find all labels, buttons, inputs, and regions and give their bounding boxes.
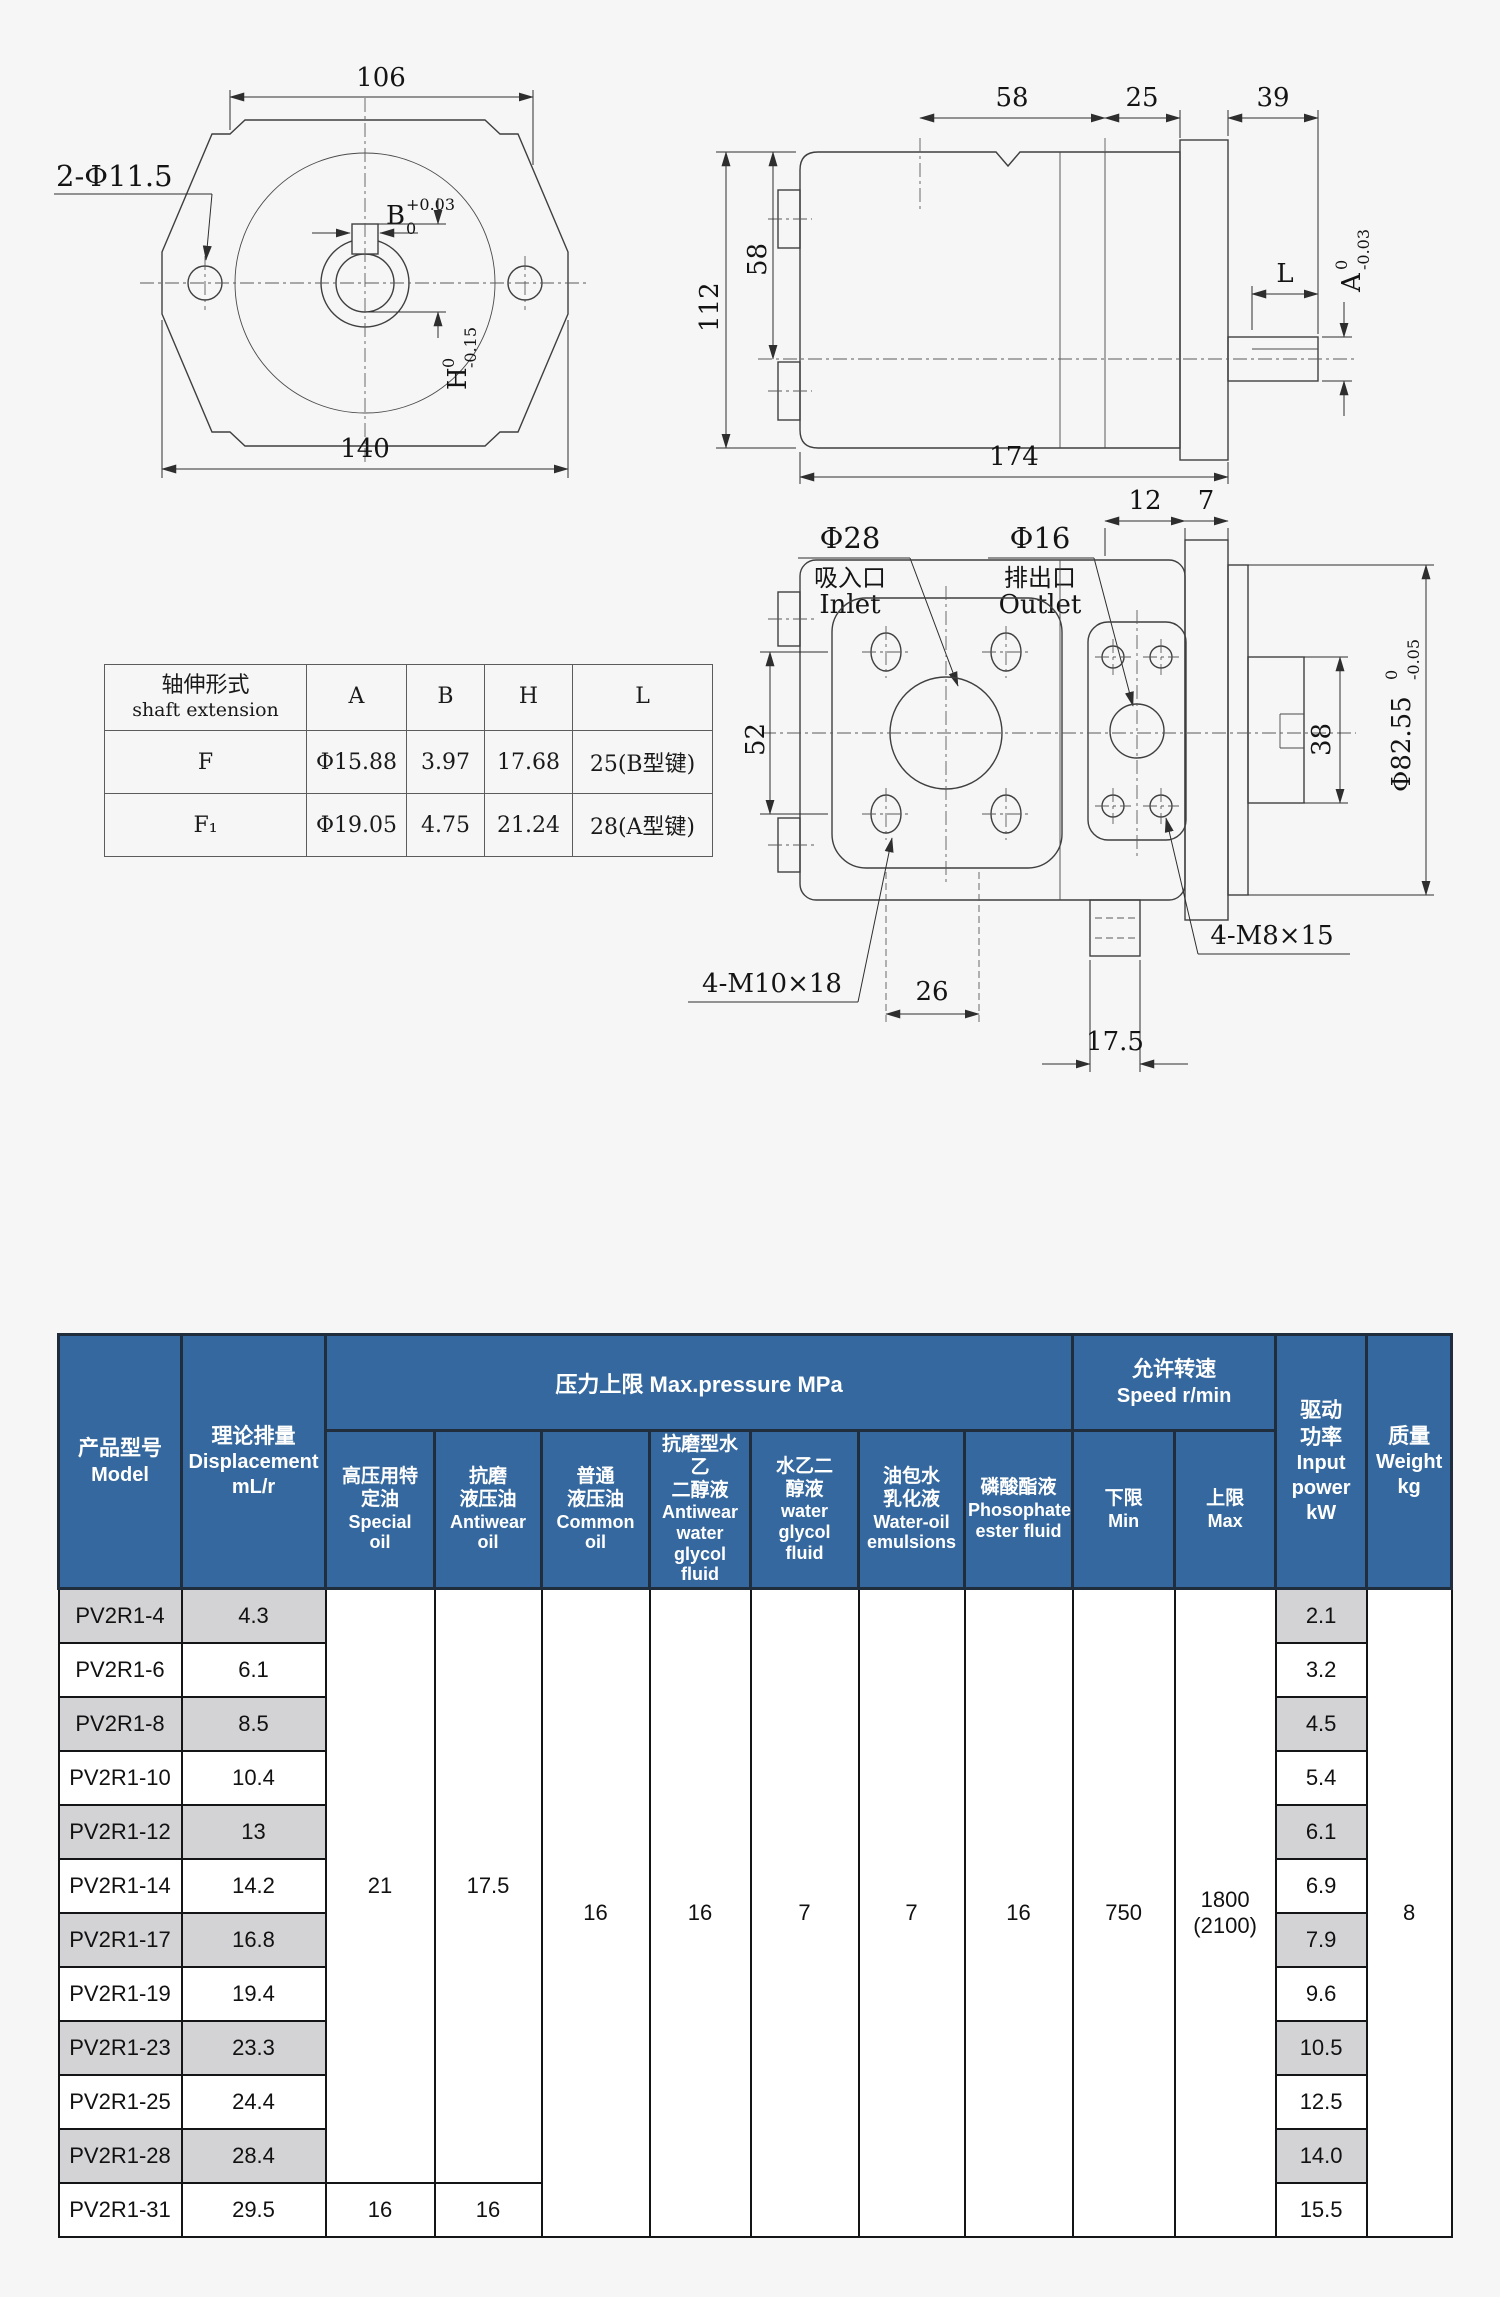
dim-175-label: 17.5 [1086,1027,1144,1057]
model-cell: PV2R1-23 [59,2021,182,2075]
shaft-col-type: 轴伸形式 shaft extension [105,665,307,731]
dim-a-sub: -0.03 [1354,229,1373,270]
max-cn: 上限 [1178,1488,1272,1511]
merged-water-oil: 7 [859,1589,965,2237]
shaft-type-cn: 轴伸形式 [105,673,306,699]
col-min: 下限Min [1073,1431,1175,1589]
col-model: 产品型号 Model [59,1335,182,1589]
model-cn: 产品型号 [62,1435,178,1462]
dim-a-main: A [1337,272,1367,293]
dim-b-sup: +0.03 [406,195,455,214]
spec-row: PV2R1-4 4.3 21 17.5 16 16 7 7 16 750 180… [59,1589,1452,1643]
dim-25-label: 25 [1125,83,1158,113]
dim-25: 25 [1105,83,1180,138]
dim-h-sub: -0.15 [461,327,480,368]
disp-en: Displacement mL/r [185,1450,322,1500]
merged-min-speed: 750 [1073,1589,1175,2237]
model-cell: PV2R1-31 [59,2183,182,2237]
dim-58-top-label: 58 [995,83,1028,113]
dim-140-label: 140 [340,434,390,464]
dim-26: 26 [886,872,979,1022]
dim-h-main: H [443,367,473,390]
dim-a-sup: 0 [1332,260,1351,270]
dim-52-label: 52 [741,723,771,756]
shaft-f1-b: 4.75 [407,794,485,857]
model-cell: PV2R1-6 [59,1643,182,1697]
dim-phi82-sub: -0.05 [1404,639,1423,680]
shaft-col-b: B [407,665,485,731]
disp-cn: 理论排量 [185,1423,322,1450]
power-cell: 14.0 [1276,2129,1367,2183]
disp-cell: 23.3 [182,2021,326,2075]
model-cell: PV2R1-28 [59,2129,182,2183]
min-en: Min [1076,1511,1171,1532]
power-cell: 10.5 [1276,2021,1367,2075]
merged-weight: 8 [1367,1589,1452,2237]
fluid2-en: Common oil [545,1512,646,1553]
power-cell: 4.5 [1276,1697,1367,1751]
dim-B-tolerance: B +0.03 0 [312,195,455,238]
min-cn: 下限 [1076,1488,1171,1511]
fluid1-cn: 抗磨 液压油 [438,1466,538,1512]
model-en: Model [62,1463,178,1488]
model-cell: PV2R1-12 [59,1805,182,1859]
model-cell: PV2R1-25 [59,2075,182,2129]
shaft-f-type: F [105,731,307,794]
disp-cell: 10.4 [182,1751,326,1805]
dim-39: 39 [1228,83,1318,334]
fluid4-en: water glycol fluid [754,1501,855,1563]
max-en: Max [1178,1511,1272,1532]
shaft-f-a: Φ15.88 [307,731,407,794]
group-pressure: 压力上限 Max.pressure MPa [326,1335,1073,1431]
fluid0-en: Special oil [329,1512,431,1553]
fluid2-cn: 普通 液压油 [545,1466,646,1512]
fluid1-en: Antiwear oil [438,1512,538,1553]
dim-phi82-sup: 0 [1382,670,1401,680]
shaft-extension-table: 轴伸形式 shaft extension A B H L F Φ15.88 3.… [104,664,713,857]
disp-cell: 6.1 [182,1643,326,1697]
shaft-f1-l: 28(A型键) [573,794,713,857]
fluid5-en: Water-oil emulsions [862,1512,961,1553]
shaft-col-a: A [307,665,407,731]
fluid3-en: Antiwear water glycol fluid [653,1502,747,1585]
spec-header-group-row: 产品型号 Model 理论排量 Displacement mL/r 压力上限 M… [59,1335,1452,1431]
shaft-f1-type: F₁ [105,794,307,857]
outlet-cn-label: 排出口 [1004,564,1076,592]
power-en: Input power kW [1279,1451,1363,1526]
merged-antiwear-glycol: 16 [650,1589,751,2237]
power-cell: 6.9 [1276,1859,1367,1913]
dim-A-tolerance: A 0 -0.03 [1322,229,1373,416]
dim-58-top: 58 [920,83,1105,118]
merged-antiwear-oil: 17.5 [435,1589,542,2183]
holes-label: 2-Φ11.5 [56,159,173,193]
callout-mounting-holes: 2-Φ11.5 [54,159,212,260]
callout-m10: 4-M10×18 [688,838,892,1002]
power-cell: 6.1 [1276,1805,1367,1859]
disp-cell: 4.3 [182,1589,326,1643]
dim-112: 112 [695,152,796,448]
col-weight: 质量 Weight kg [1367,1335,1452,1589]
shaft-f1-a: Φ19.05 [307,794,407,857]
dim-L-label: L [1276,259,1293,289]
inlet-callout: Φ28 吸入口 Inlet [798,521,958,686]
dim-7-label: 7 [1198,486,1215,516]
model-cell: PV2R1-8 [59,1697,182,1751]
dim-58-vertical: 58 [743,152,773,359]
col-displacement: 理论排量 Displacement mL/r [182,1335,326,1589]
power-cn: 驱动 功率 [1279,1397,1363,1452]
speed-en: Speed r/min [1076,1384,1272,1409]
weight-cn: 质量 [1370,1423,1448,1450]
power-cell: 2.1 [1276,1589,1367,1643]
dim-h-sup: 0 [439,358,458,368]
dim-112-label: 112 [695,282,725,332]
fluid6-en: Phosophate ester fluid [968,1500,1069,1541]
col-input-power: 驱动 功率 Input power kW [1276,1335,1367,1589]
dim-38: 38 [1304,657,1348,803]
disp-cell: 29.5 [182,2183,326,2237]
inlet-en-label: Inlet [819,590,881,620]
model-cell: PV2R1-10 [59,1751,182,1805]
power-cell: 5.4 [1276,1751,1367,1805]
power-cell: 7.9 [1276,1913,1367,1967]
merged-max-speed: 1800 (2100) [1175,1589,1276,2237]
col-water-oil: 油包水 乳化液Water-oil emulsions [859,1431,965,1589]
m10-label: 4-M10×18 [702,969,842,999]
outlet-en-label: Outlet [999,590,1082,620]
merged-special-oil: 21 [326,1589,435,2183]
dim-b-main: B [386,201,405,231]
model-cell: PV2R1-4 [59,1589,182,1643]
shaft-f-b: 3.97 [407,731,485,794]
dim-phi82-main: Φ82.55 [1387,696,1417,792]
model-cell: PV2R1-14 [59,1859,182,1913]
shaft-row-F: F Φ15.88 3.97 17.68 25(B型键) [105,731,713,794]
outlet-dia-label: Φ16 [1010,521,1071,555]
col-antiwear-oil: 抗磨 液压油Antiwear oil [435,1431,542,1589]
disp-cell: 14.2 [182,1859,326,1913]
last-special-oil: 16 [326,2183,435,2237]
callout-m8: 4-M8×15 [1166,818,1350,954]
shaft-col-l: L [573,665,713,731]
disp-cell: 13 [182,1805,326,1859]
group-speed: 允许转速 Speed r/min [1073,1335,1276,1431]
shaft-table-header-row: 轴伸形式 shaft extension A B H L [105,665,713,731]
dim-174-label: 174 [989,442,1039,472]
fluid6-cn: 磷酸酯液 [968,1477,1069,1500]
dim-12-7: 12 7 [1105,486,1228,556]
dim-17-5: 17.5 [1042,960,1188,1072]
side-view: 58 25 39 112 58 [695,83,1373,484]
col-common-oil: 普通 液压油Common oil [542,1431,650,1589]
col-antiwear-glycol: 抗磨型水乙 二醇液Antiwear water glycol fluid [650,1431,751,1589]
dim-106: 106 [230,63,533,165]
merged-common-oil: 16 [542,1589,650,2237]
col-phosphate: 磷酸酯液Phosophate ester fluid [965,1431,1073,1589]
col-max: 上限Max [1175,1431,1276,1589]
dim-26-label: 26 [915,977,948,1007]
pump-technical-drawing: 106 140 2-Φ11.5 B +0.03 0 H 0 [0,0,1500,1120]
power-cell: 3.2 [1276,1643,1367,1697]
fluid0-cn: 高压用特 定油 [329,1466,431,1512]
shaft-type-en: shaft extension [105,699,306,722]
dim-58v-label: 58 [743,243,773,276]
disp-cell: 28.4 [182,2129,326,2183]
datasheet-page: { "drawing": { "front": { "dim106": "106… [0,0,1500,2297]
col-special-oil: 高压用特 定油Special oil [326,1431,435,1589]
front-view: 106 140 2-Φ11.5 B +0.03 0 H 0 [54,63,590,478]
shaft-f-h: 17.68 [485,731,573,794]
weight-en: Weight kg [1370,1450,1448,1500]
power-cell: 15.5 [1276,2183,1367,2237]
disp-cell: 8.5 [182,1697,326,1751]
dim-phi82: Φ82.55 0 -0.05 [1248,565,1434,895]
m8-label: 4-M8×15 [1210,921,1333,951]
model-cell: PV2R1-17 [59,1913,182,1967]
power-cell: 12.5 [1276,2075,1367,2129]
shaft-col-h: H [485,665,573,731]
disp-cell: 24.4 [182,2075,326,2129]
model-cell: PV2R1-19 [59,1967,182,2021]
disp-cell: 19.4 [182,1967,326,2021]
fluid3-cn: 抗磨型水乙 二醇液 [653,1434,747,1502]
dim-106-label: 106 [356,63,406,93]
shaft-f-l: 25(B型键) [573,731,713,794]
inlet-cn-label: 吸入口 [814,564,886,592]
dim-12-label: 12 [1128,486,1161,516]
dim-38-label: 38 [1307,723,1337,756]
speed-cn: 允许转速 [1076,1356,1272,1383]
dim-L: L [1252,259,1318,330]
col-water-glycol: 水乙二 醇液water glycol fluid [751,1431,859,1589]
fluid4-cn: 水乙二 醇液 [754,1456,855,1502]
outlet-callout: Φ16 排出口 Outlet [988,521,1133,706]
inlet-dia-label: Φ28 [820,521,881,555]
last-antiwear-oil: 16 [435,2183,542,2237]
disp-cell: 16.8 [182,1913,326,1967]
spigot [1228,565,1248,895]
fluid5-cn: 油包水 乳化液 [862,1466,961,1512]
dim-b-sub: 0 [406,219,416,238]
dim-39-label: 39 [1256,83,1289,113]
merged-phosphate: 16 [965,1589,1073,2237]
shaft-row-F1: F₁ Φ19.05 4.75 21.24 28(A型键) [105,794,713,857]
shaft-f1-h: 21.24 [485,794,573,857]
mounting-flange [1180,140,1228,460]
dim-H-tolerance: H 0 -0.15 [368,198,480,390]
merged-water-glycol: 7 [751,1589,859,2237]
spec-table: 产品型号 Model 理论排量 Displacement mL/r 压力上限 M… [57,1333,1453,2238]
power-cell: 9.6 [1276,1967,1367,2021]
